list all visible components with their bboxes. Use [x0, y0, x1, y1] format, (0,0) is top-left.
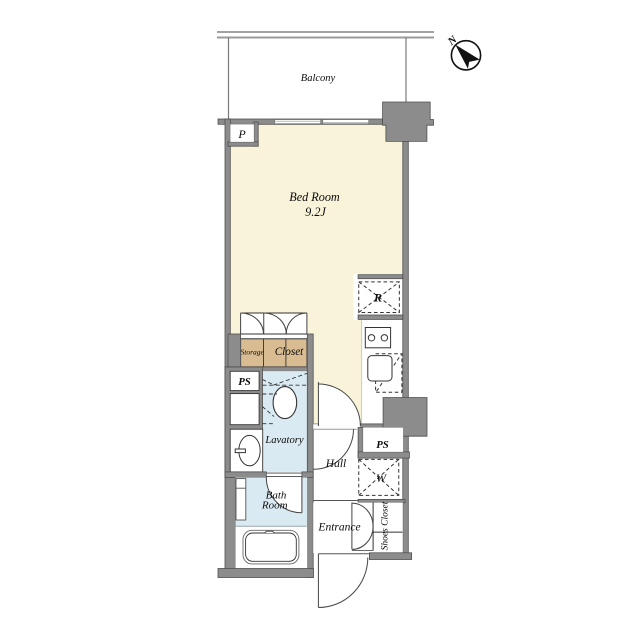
svg-text:Lavatory: Lavatory: [264, 435, 304, 446]
svg-text:PS: PS: [238, 376, 251, 388]
svg-text:PS: PS: [376, 439, 389, 451]
svg-text:R: R: [373, 291, 382, 305]
svg-text:Room: Room: [261, 500, 288, 512]
svg-text:Entrance: Entrance: [317, 521, 360, 533]
svg-text:Hall: Hall: [325, 458, 346, 470]
svg-text:Storage: Storage: [241, 348, 265, 357]
svg-text:P: P: [237, 127, 246, 141]
svg-text:W: W: [376, 471, 387, 485]
svg-text:9.2J: 9.2J: [305, 205, 326, 219]
svg-text:Shoes Closet: Shoes Closet: [381, 501, 391, 550]
svg-text:Bed Room: Bed Room: [289, 190, 340, 204]
svg-text:Balcony: Balcony: [301, 73, 336, 84]
svg-text:Closet: Closet: [275, 346, 304, 358]
